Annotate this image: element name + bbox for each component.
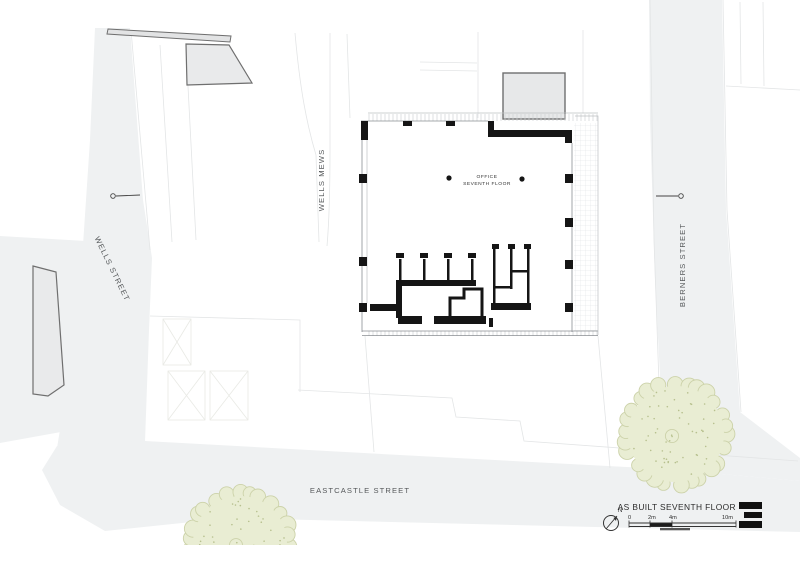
office-label-line1: OFFICE [477,174,498,180]
wells-mews-label: WELLS MEWS [317,149,326,211]
berners-street-label: BERNERS STREET [678,223,687,307]
core-walls [370,244,531,327]
scale-label-0: 0 [628,515,631,521]
floor-plan-drawing: OFFICE SEVENTH FLOOR WELLS STREET WELLS … [0,0,800,566]
floor-plan-page: OFFICE SEVENTH FLOOR WELLS STREET WELLS … [0,0,800,566]
north-roof-building [503,73,565,119]
scale-label-4m: 4m [669,515,677,521]
north-chamfer-building [186,44,252,85]
office-label: OFFICE SEVENTH FLOOR [463,174,511,187]
drawing-title: AS BUILT SEVENTH FLOOR [618,502,736,512]
eastcastle-street-label: EASTCASTLE STREET [310,486,410,495]
scale-label-2m: 2m [648,515,656,521]
skylight-roofs [163,319,248,420]
interior-column [519,176,524,181]
scale-label-10m: 10m [722,515,733,521]
interior-column [446,175,451,180]
office-label-line2: SEVENTH FLOOR [463,181,511,187]
